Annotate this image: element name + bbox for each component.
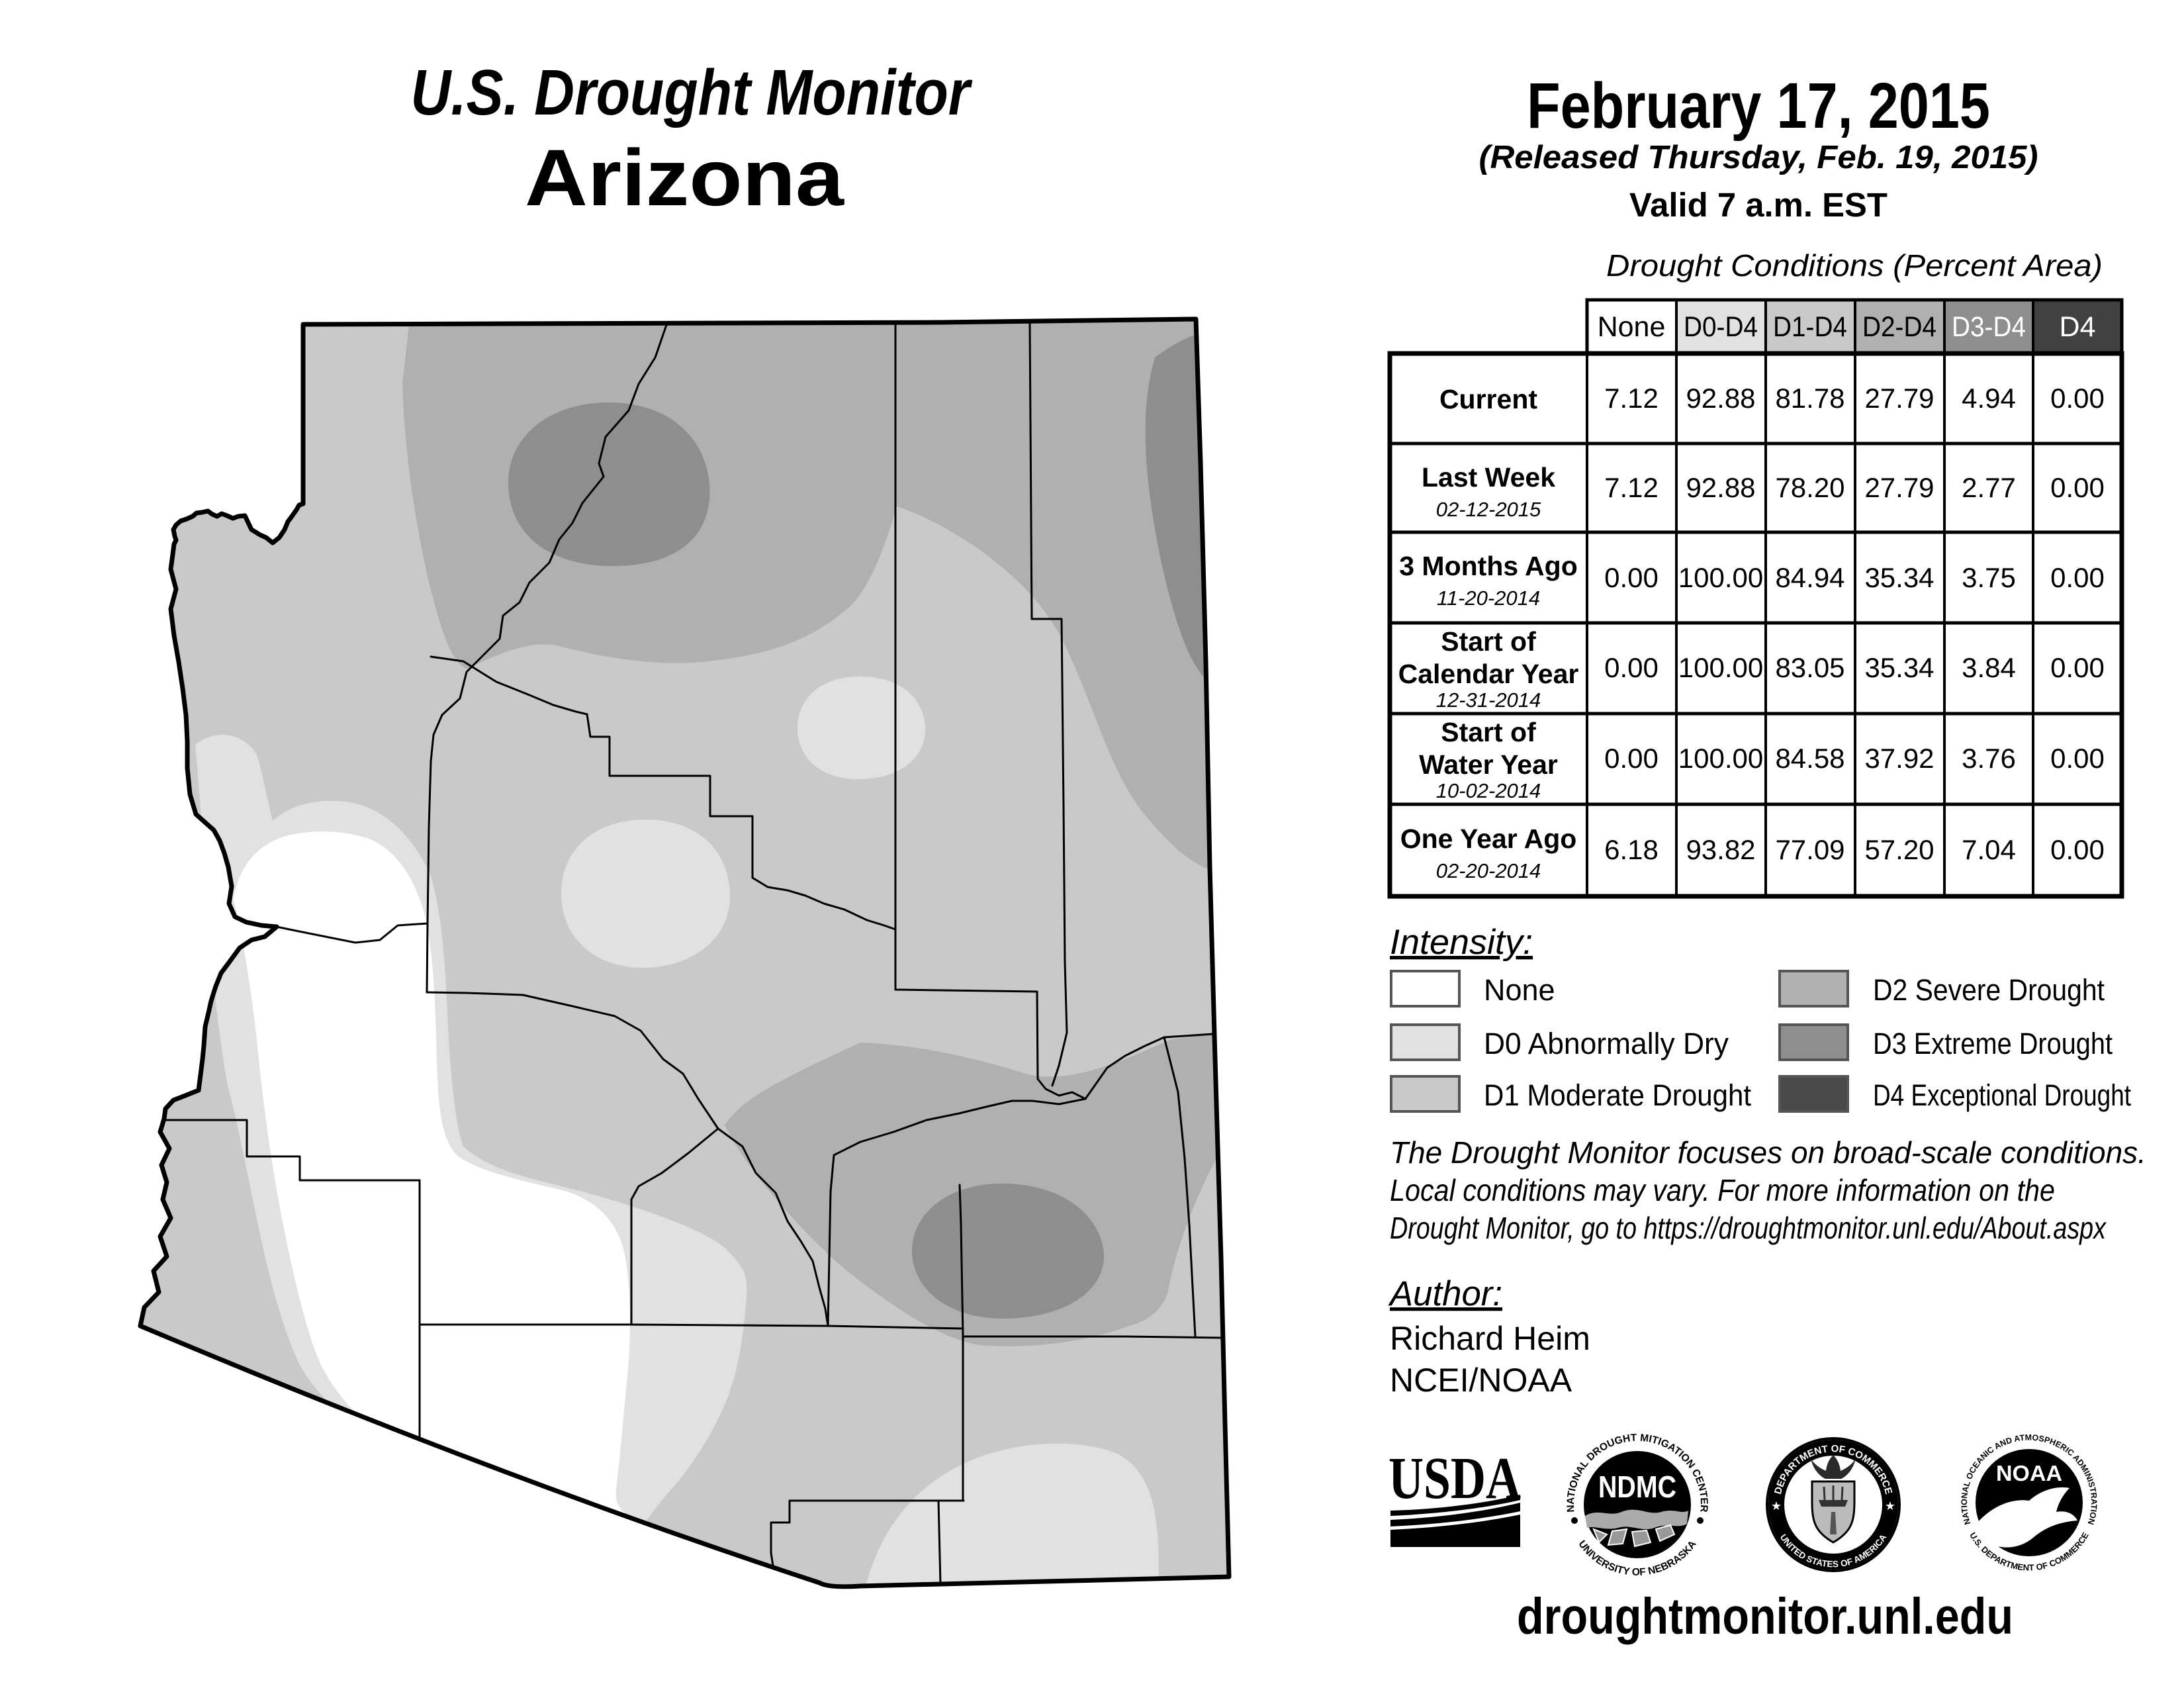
svg-text:12-31-2014: 12-31-2014 <box>1436 688 1541 712</box>
svg-text:Intensity:: Intensity: <box>1390 923 1533 962</box>
svg-text:D1 Moderate Drought: D1 Moderate Drought <box>1484 1078 1751 1112</box>
svg-text:One Year Ago: One Year Ago <box>1400 823 1577 854</box>
svg-text:4.94: 4.94 <box>1962 383 2016 414</box>
svg-text:2.77: 2.77 <box>1962 472 2016 503</box>
svg-text:27.79: 27.79 <box>1864 383 1934 414</box>
svg-text:NCEI/NOAA: NCEI/NOAA <box>1390 1362 1572 1399</box>
svg-text:0.00: 0.00 <box>1604 743 1659 774</box>
svg-text:6.18: 6.18 <box>1604 834 1659 865</box>
svg-text:D3 Extreme Drought: D3 Extreme Drought <box>1873 1027 2113 1060</box>
svg-text:Calendar Year: Calendar Year <box>1398 659 1579 689</box>
svg-text:35.34: 35.34 <box>1864 652 1934 683</box>
svg-text:NOAA: NOAA <box>1996 1461 2062 1485</box>
svg-text:3.76: 3.76 <box>1962 743 2016 774</box>
svg-text:Author:: Author: <box>1388 1274 1502 1313</box>
svg-text:84.94: 84.94 <box>1775 562 1844 593</box>
svg-text:NDMC: NDMC <box>1598 1470 1676 1504</box>
svg-text:(Released Thursday, Feb. 19, 2: (Released Thursday, Feb. 19, 2015) <box>1479 140 2038 175</box>
svg-text:D3-D4: D3-D4 <box>1952 311 2026 343</box>
svg-text:35.34: 35.34 <box>1864 562 1934 593</box>
svg-text:D1-D4: D1-D4 <box>1773 311 1847 343</box>
svg-text:Drought Conditions (Percent Ar: Drought Conditions (Percent Area) <box>1606 248 2103 283</box>
svg-text:78.20: 78.20 <box>1775 472 1844 503</box>
svg-text:27.79: 27.79 <box>1864 472 1934 503</box>
svg-text:3.84: 3.84 <box>1962 652 2016 683</box>
svg-text:100.00: 100.00 <box>1678 652 1763 683</box>
svg-text:The Drought Monitor focuses on: The Drought Monitor focuses on broad-sca… <box>1390 1135 2146 1170</box>
svg-text:0.00: 0.00 <box>2050 383 2105 414</box>
svg-text:droughtmonitor.unl.edu: droughtmonitor.unl.edu <box>1517 1588 2013 1645</box>
svg-text:Current: Current <box>1439 384 1537 414</box>
svg-text:Start of: Start of <box>1441 717 1536 747</box>
svg-text:Local conditions may vary. For: Local conditions may vary. For more info… <box>1390 1173 2055 1207</box>
svg-text:Arizona: Arizona <box>525 132 845 222</box>
svg-text:Valid 7 a.m. EST: Valid 7 a.m. EST <box>1629 186 1888 224</box>
svg-text:3.75: 3.75 <box>1962 562 2016 593</box>
svg-text:81.78: 81.78 <box>1775 383 1844 414</box>
svg-text:11-20-2014: 11-20-2014 <box>1437 586 1540 610</box>
svg-text:0.00: 0.00 <box>2050 472 2105 503</box>
svg-text:3 Months Ago: 3 Months Ago <box>1399 551 1578 581</box>
svg-text:D2 Severe Drought: D2 Severe Drought <box>1873 973 2105 1007</box>
svg-text:Drought Monitor, go to https:/: Drought Monitor, go to https://droughtmo… <box>1390 1211 2107 1245</box>
svg-text:37.92: 37.92 <box>1864 743 1934 774</box>
svg-text:None: None <box>1484 973 1555 1007</box>
svg-text:D0-D4: D0-D4 <box>1684 311 1758 343</box>
svg-text:Water Year: Water Year <box>1419 749 1558 780</box>
svg-text:D4 Exceptional Drought: D4 Exceptional Drought <box>1873 1078 2131 1112</box>
svg-text:7.12: 7.12 <box>1604 472 1659 503</box>
svg-text:D4: D4 <box>2060 311 2096 343</box>
svg-text:83.05: 83.05 <box>1775 652 1844 683</box>
svg-text:★: ★ <box>1885 1499 1895 1513</box>
svg-text:57.20: 57.20 <box>1864 834 1934 865</box>
svg-text:100.00: 100.00 <box>1678 743 1763 774</box>
svg-text:D2-D4: D2-D4 <box>1862 311 1936 343</box>
svg-text:02-12-2015: 02-12-2015 <box>1436 498 1541 521</box>
svg-text:84.58: 84.58 <box>1775 743 1844 774</box>
svg-text:92.88: 92.88 <box>1686 472 1755 503</box>
svg-text:7.04: 7.04 <box>1962 834 2016 865</box>
svg-text:D0 Abnormally Dry: D0 Abnormally Dry <box>1484 1027 1729 1060</box>
svg-text:0.00: 0.00 <box>2050 834 2105 865</box>
svg-text:92.88: 92.88 <box>1686 383 1755 414</box>
svg-text:02-20-2014: 02-20-2014 <box>1436 859 1541 882</box>
svg-text:0.00: 0.00 <box>2050 562 2105 593</box>
svg-text:0.00: 0.00 <box>1604 652 1659 683</box>
svg-text:February 17, 2015: February 17, 2015 <box>1527 70 1990 142</box>
svg-text:None: None <box>1598 311 1666 343</box>
svg-text:★: ★ <box>1771 1499 1782 1513</box>
svg-text:77.09: 77.09 <box>1775 834 1844 865</box>
svg-text:0.00: 0.00 <box>2050 652 2105 683</box>
svg-text:10-02-2014: 10-02-2014 <box>1436 779 1541 802</box>
svg-text:7.12: 7.12 <box>1604 383 1659 414</box>
svg-text:Last Week: Last Week <box>1422 462 1555 492</box>
svg-text:100.00: 100.00 <box>1678 562 1763 593</box>
svg-text:Start of: Start of <box>1441 626 1536 657</box>
svg-text:93.82: 93.82 <box>1686 834 1755 865</box>
svg-text:U.S. Drought Monitor: U.S. Drought Monitor <box>411 56 974 128</box>
svg-text:Richard Heim: Richard Heim <box>1390 1320 1590 1357</box>
svg-text:0.00: 0.00 <box>2050 743 2105 774</box>
svg-text:0.00: 0.00 <box>1604 562 1659 593</box>
